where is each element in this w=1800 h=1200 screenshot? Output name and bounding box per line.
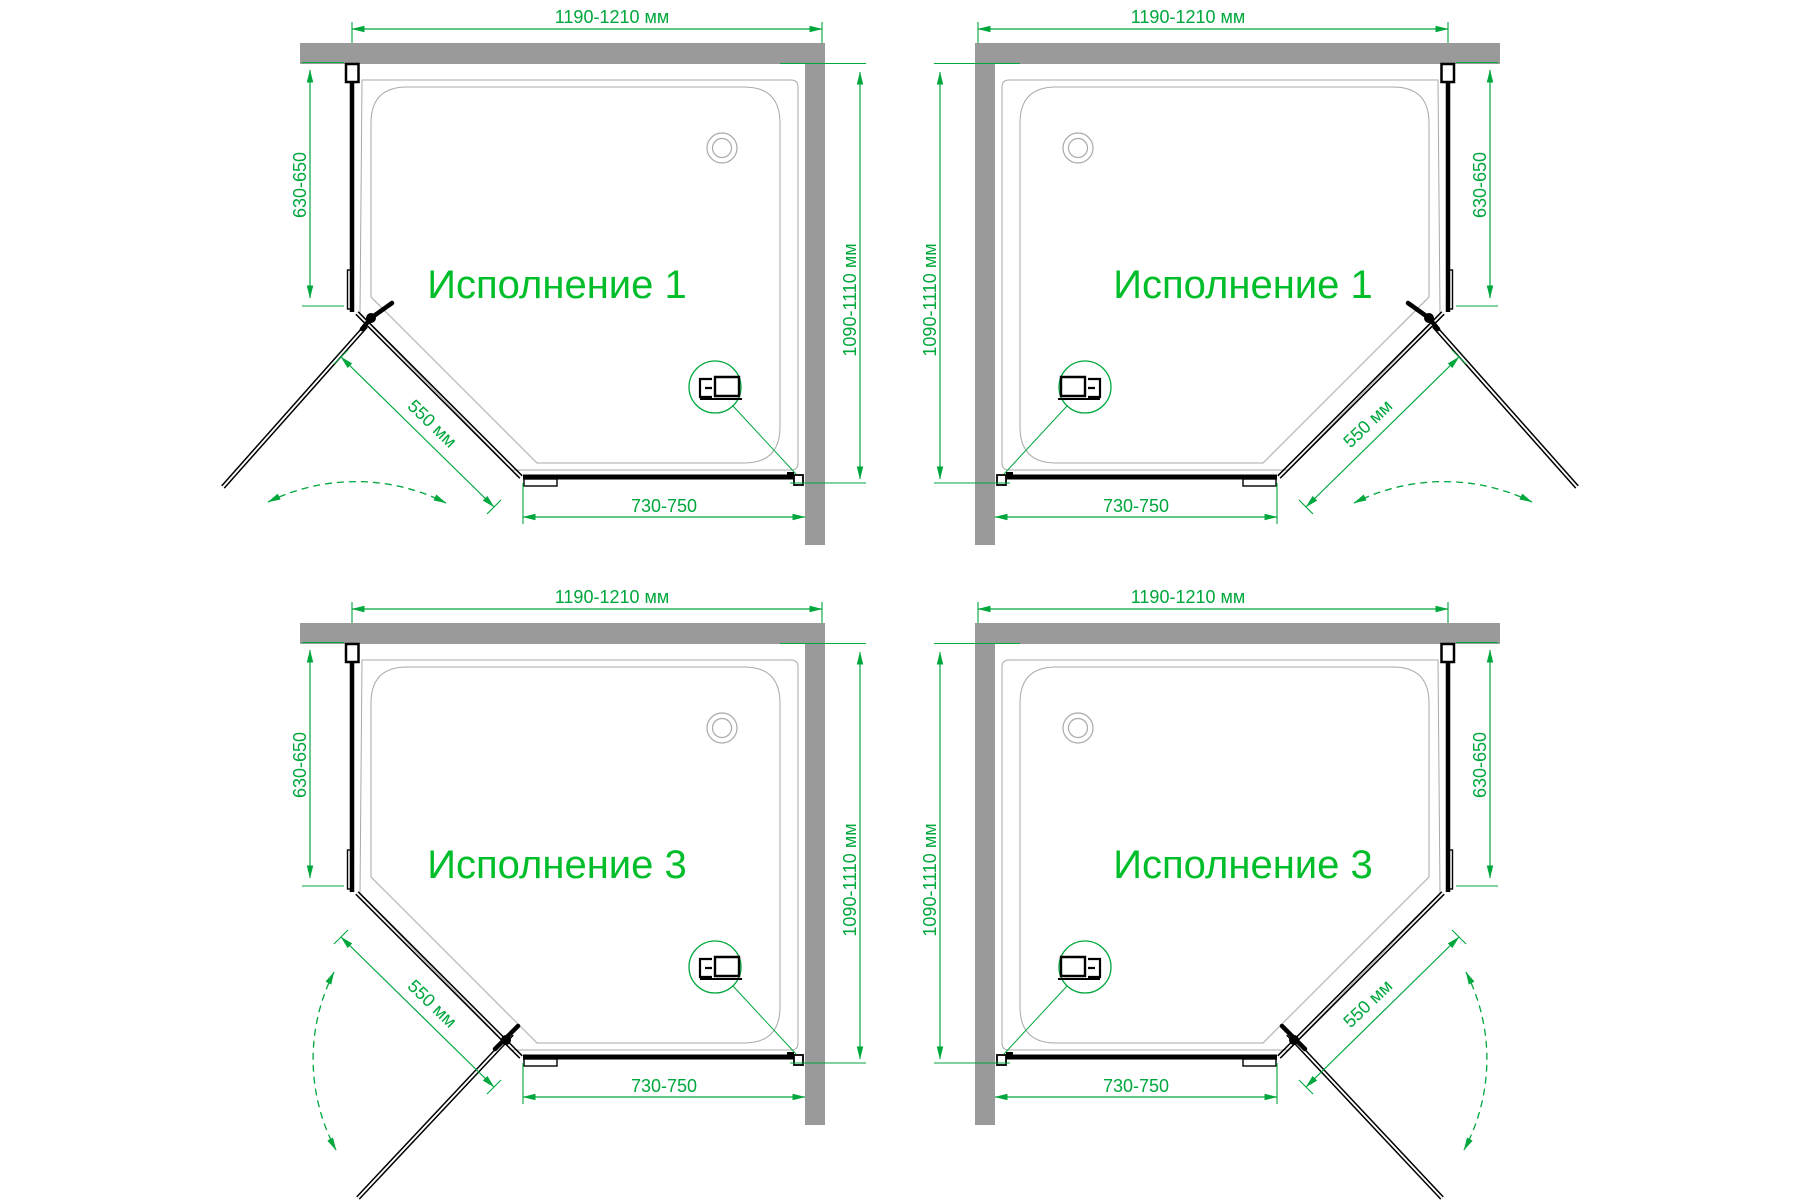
dim-side-height: 630-650 [1470,152,1490,218]
corner-profile [787,1052,794,1059]
door-glass-closed [358,892,522,1056]
dim-side-height: 630-650 [290,152,310,218]
wall-side [805,623,825,1125]
drain-icon [707,133,737,163]
dim-bottom-width: 730-750 [1103,1076,1169,1096]
dim-top-width: 1190-1210 мм [1131,7,1246,27]
drain-icon [1069,139,1088,158]
profile-cross-section-icon [700,379,712,397]
dimension-diagonal-line [1306,937,1459,1087]
dim-door-diagonal: 550 мм [1339,396,1396,452]
profile-cross-section-icon [700,959,712,977]
panel-top-right: 1190-1210 мм 630-650 1090-1110 мм 550 мм… [920,7,1578,545]
detail-leader-line [1004,406,1067,474]
door-glass-open [1435,325,1578,486]
profile-cross-section-icon [715,377,739,396]
profile-cross-section-icon [715,957,739,976]
wall-profile-bracket [346,644,359,662]
bottom-profile-bracket [1243,479,1276,486]
profile-cross-section-icon [1061,957,1085,976]
dim-wall-height: 1090-1110 мм [840,823,860,936]
profile-cross-section-icon [1088,959,1100,977]
panel-top-left: 1190-1210 мм 630-650 1090-1110 мм 550 мм… [222,7,866,545]
dim-wall-height: 1090-1110 мм [840,243,860,356]
dim-wall-height: 1090-1110 мм [920,823,940,936]
dim-bottom-width: 730-750 [631,1076,697,1096]
wall-profile-bracket [1442,64,1455,82]
wall-top [975,623,1500,644]
door-glass-open [1289,1033,1443,1197]
profile-cross-section-icon [1088,379,1100,397]
door-glass-closed [358,312,522,476]
door-glass-closed [1278,312,1442,476]
page: 1190-1210 мм 630-650 1090-1110 мм 550 мм… [0,0,1800,1200]
drain-icon [1069,719,1088,738]
dim-side-height: 630-650 [290,732,310,798]
swing-arc-arrows-icon [268,482,446,503]
corner-profile [1006,472,1013,479]
door-glass-open [222,325,365,486]
dim-top-width: 1190-1210 мм [1131,587,1246,607]
wall-side [805,43,825,545]
door-glass-open [224,327,367,488]
wall-side [975,43,995,545]
panel-title: Исполнение 1 [1113,263,1373,307]
panel-title: Исполнение 3 [427,843,687,887]
drain-icon [707,713,737,743]
dimension-diagonal-line [1306,357,1459,507]
hinge-arm [1408,303,1429,318]
drain-icon [713,719,732,738]
dim-bottom-width: 730-750 [631,496,697,516]
door-glass-open [1287,1035,1441,1199]
swing-arc-arrows-icon [1354,482,1532,503]
panel-geometry [300,602,866,1199]
door-glass-open [357,1033,511,1197]
bottom-profile-bracket [1243,1059,1276,1066]
detail-leader-line [1004,986,1067,1054]
detail-leader-line [733,986,796,1054]
drain-icon [713,139,732,158]
corner-profile [787,472,794,479]
door-glass-open [359,1035,513,1199]
panel-bottom-right: 1190-1210 мм 630-650 1090-1110 мм 550 мм… [920,587,1500,1199]
drain-icon [1063,713,1093,743]
panel-geometry [934,602,1500,1199]
door-glass-closed [1278,892,1442,1056]
dim-side-height: 630-650 [1470,732,1490,798]
detail-leader-line [733,406,796,474]
technical-drawing: 1190-1210 мм 630-650 1090-1110 мм 550 мм… [0,0,1800,1200]
dimension-diagonal-line [341,357,494,507]
bottom-profile-bracket [524,1059,557,1066]
wall-top [975,43,1500,64]
dim-top-width: 1190-1210 мм [555,7,670,27]
bottom-profile-bracket [524,479,557,486]
dim-top-width: 1190-1210 мм [555,587,670,607]
dim-wall-height: 1090-1110 мм [920,243,940,356]
dim-bottom-width: 730-750 [1103,496,1169,516]
panel-title: Исполнение 3 [1113,843,1373,887]
panel-bottom-left: 1190-1210 мм 630-650 1090-1110 мм 550 мм… [290,587,866,1199]
swing-arc-arrows-icon [313,972,336,1150]
dim-door-diagonal: 550 мм [1339,976,1396,1032]
door-glass-open [1433,327,1576,488]
swing-arc-arrows-icon [1464,972,1487,1150]
dim-door-diagonal: 550 мм [404,396,461,452]
wall-top [300,623,825,644]
wall-side [975,623,995,1125]
dim-door-diagonal: 550 мм [404,976,461,1032]
hinge-arm [371,303,392,318]
dimension-diagonal-line [341,937,494,1087]
drain-icon [1063,133,1093,163]
wall-top [300,43,825,64]
wall-profile-bracket [1442,644,1455,662]
corner-profile [1006,1052,1013,1059]
panel-title: Исполнение 1 [427,263,687,307]
wall-profile-bracket [346,64,359,82]
profile-cross-section-icon [1061,377,1085,396]
